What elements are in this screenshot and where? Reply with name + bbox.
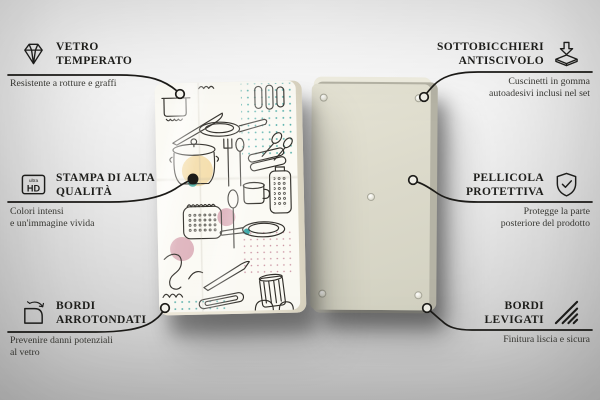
callout-title-line: ANTISCIVOLO bbox=[437, 55, 544, 69]
callout-title-line: LEVIGATI bbox=[485, 314, 544, 328]
rubber-pad bbox=[320, 94, 328, 102]
product-infographic: VETRO TEMPERATO Resistente a rotture e g… bbox=[0, 0, 600, 400]
rubber-pad bbox=[367, 193, 375, 201]
callout-sottobicchieri-antiscivolo: SOTTOBICCHIERI ANTISCIVOLO Cuscinetti in… bbox=[430, 40, 592, 99]
callout-subtitle-line: Cuscinetti in gomma bbox=[430, 76, 590, 88]
callout-bordi-levigati: BORDI LEVIGATI Finitura liscia e sicura bbox=[430, 299, 592, 346]
diamond-icon bbox=[20, 40, 47, 67]
callout-title: STAMPA DI ALTA QUALITÀ bbox=[56, 171, 155, 199]
kitchen-utensils-pattern bbox=[155, 81, 301, 313]
callout-bordi-arrotondati: BORDI ARROTONDATI Prevenire danni potenz… bbox=[8, 299, 158, 358]
callout-subtitle: Colori intensi e un'immagine vivida bbox=[8, 206, 158, 229]
callout-stampa-di-alta-qualita: ultra HD STAMPA DI ALTA QUALITÀ Colori i… bbox=[8, 171, 158, 229]
callout-title-line: VETRO bbox=[56, 41, 132, 55]
glass-board-front bbox=[155, 80, 307, 315]
printed-face bbox=[155, 81, 301, 313]
rubber-pad bbox=[318, 290, 326, 298]
callout-title-line: STAMPA DI ALTA bbox=[56, 172, 155, 186]
callout-subtitle-line: Protegge la parte bbox=[430, 206, 590, 218]
callout-title: PELLICOLA PROTETTIVA bbox=[466, 171, 544, 199]
callout-subtitle: Prevenire danni potenziali al vetro bbox=[8, 335, 158, 358]
callout-vetro-temperato: VETRO TEMPERATO Resistente a rotture e g… bbox=[8, 40, 158, 90]
callout-pellicola-protettiva: PELLICOLA PROTETTIVA Protegge la parte p… bbox=[430, 171, 592, 229]
callout-subtitle-line: Colori intensi bbox=[10, 206, 158, 218]
callout-title-line: BORDI bbox=[56, 300, 146, 314]
callout-title-line: SOTTOBICCHIERI bbox=[437, 41, 544, 55]
callout-subtitle-line: autoadesivi inclusi nel set bbox=[430, 88, 590, 100]
panel-back-face bbox=[310, 84, 431, 311]
callout-title-line: QUALITÀ bbox=[56, 186, 155, 200]
callout-title: BORDI ARROTONDATI bbox=[56, 299, 146, 327]
ultra-hd-icon: ultra HD bbox=[20, 171, 47, 198]
callout-subtitle: Resistente a rotture e graffi bbox=[8, 78, 158, 90]
callout-subtitle: Protegge la parte posteriore del prodott… bbox=[430, 206, 592, 229]
callout-subtitle-line: e un'immagine vivida bbox=[10, 218, 158, 230]
svg-text:HD: HD bbox=[27, 183, 41, 193]
callout-title-line: PROTETTIVA bbox=[466, 186, 544, 200]
shield-check-icon bbox=[553, 171, 580, 198]
callout-subtitle-line: posteriore del prodotto bbox=[430, 218, 590, 230]
rubber-pad bbox=[415, 94, 423, 102]
callout-subtitle-line: Resistente a rotture e graffi bbox=[10, 78, 158, 90]
callout-title: VETRO TEMPERATO bbox=[56, 40, 132, 68]
callout-title-line: BORDI bbox=[485, 300, 544, 314]
callout-title-line: PELLICOLA bbox=[466, 172, 544, 186]
rounded-corner-icon bbox=[20, 299, 47, 326]
callout-subtitle-line: Finitura liscia e sicura bbox=[430, 334, 590, 346]
non-slip-pad-icon bbox=[553, 40, 580, 67]
callout-subtitle: Finitura liscia e sicura bbox=[430, 334, 592, 346]
rubber-pad bbox=[414, 291, 422, 299]
callout-subtitle-line: al vetro bbox=[10, 347, 158, 359]
callout-subtitle-line: Prevenire danni potenziali bbox=[10, 335, 158, 347]
callout-title-line: ARROTONDATI bbox=[56, 314, 146, 328]
smooth-edges-icon bbox=[553, 299, 580, 326]
callout-title: SOTTOBICCHIERI ANTISCIVOLO bbox=[437, 40, 544, 68]
glass-board-back bbox=[308, 80, 440, 319]
callout-title: BORDI LEVIGATI bbox=[485, 299, 544, 327]
callout-subtitle: Cuscinetti in gomma autoadesivi inclusi … bbox=[430, 76, 592, 99]
callout-title-line: TEMPERATO bbox=[56, 55, 132, 69]
